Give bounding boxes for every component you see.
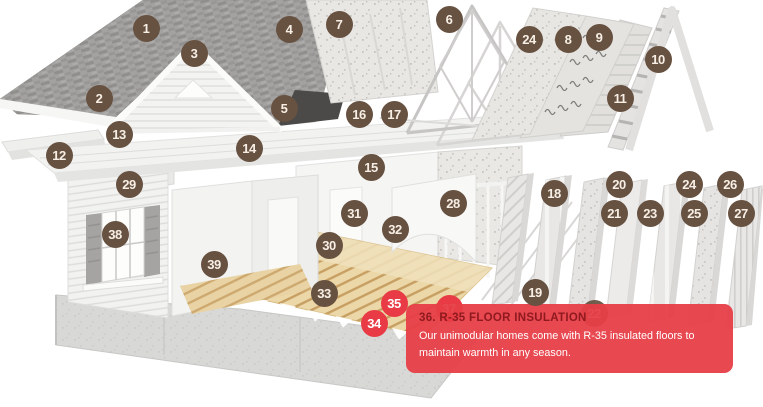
house-exploded-diagram: 1234567891011121314151617181920212223242…: [0, 0, 763, 407]
part-marker-8[interactable]: 8: [555, 26, 582, 53]
part-marker-26[interactable]: 26: [717, 171, 744, 198]
part-marker-18[interactable]: 18: [541, 180, 568, 207]
part-marker-19[interactable]: 19: [522, 279, 549, 306]
part-marker-11[interactable]: 11: [607, 85, 634, 112]
part-marker-30[interactable]: 30: [316, 232, 343, 259]
part-marker-39[interactable]: 39: [201, 251, 228, 278]
part-marker-34[interactable]: 34: [361, 310, 388, 337]
part-marker-33[interactable]: 33: [311, 280, 338, 307]
part-marker-12[interactable]: 12: [46, 142, 73, 169]
part-marker-21[interactable]: 21: [601, 200, 628, 227]
part-marker-4[interactable]: 4: [276, 16, 303, 43]
part-marker-38[interactable]: 38: [102, 221, 129, 248]
part-marker-5[interactable]: 5: [271, 95, 298, 122]
part-marker-27[interactable]: 27: [728, 200, 755, 227]
part-marker-14[interactable]: 14: [236, 135, 263, 162]
part-marker-32[interactable]: 32: [382, 216, 409, 243]
tooltip-body: Our unimodular homes come with R-35 insu…: [419, 328, 721, 363]
part-marker-13[interactable]: 13: [106, 121, 133, 148]
part-marker-23[interactable]: 23: [637, 200, 664, 227]
part-marker-17[interactable]: 17: [381, 101, 408, 128]
tooltip: 36. R-35 FLOOR INSULATION Our unimodular…: [406, 304, 733, 373]
part-marker-3[interactable]: 3: [181, 40, 208, 67]
tooltip-title: 36. R-35 FLOOR INSULATION: [419, 312, 721, 324]
part-marker-6[interactable]: 6: [436, 6, 463, 33]
part-marker-25[interactable]: 25: [681, 200, 708, 227]
part-marker-2[interactable]: 2: [86, 85, 113, 112]
part-marker-29[interactable]: 29: [116, 171, 143, 198]
part-marker-35[interactable]: 35: [381, 290, 408, 317]
part-marker-20[interactable]: 20: [606, 171, 633, 198]
part-marker-31[interactable]: 31: [341, 200, 368, 227]
part-marker-7[interactable]: 7: [326, 11, 353, 38]
part-marker-15[interactable]: 15: [358, 154, 385, 181]
part-marker-16[interactable]: 16: [346, 101, 373, 128]
part-marker-28[interactable]: 28: [440, 190, 467, 217]
part-marker-10[interactable]: 10: [645, 46, 672, 73]
part-marker-24[interactable]: 24: [516, 26, 543, 53]
part-marker-9[interactable]: 9: [586, 24, 613, 51]
part-marker-24[interactable]: 24: [676, 171, 703, 198]
part-marker-1[interactable]: 1: [133, 15, 160, 42]
